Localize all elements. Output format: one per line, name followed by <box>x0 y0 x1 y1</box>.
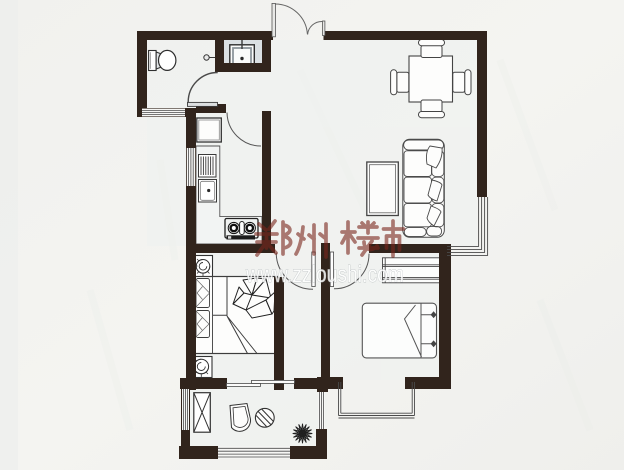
svg-text:www.zzloushi.com: www.zzloushi.com <box>245 261 404 287</box>
